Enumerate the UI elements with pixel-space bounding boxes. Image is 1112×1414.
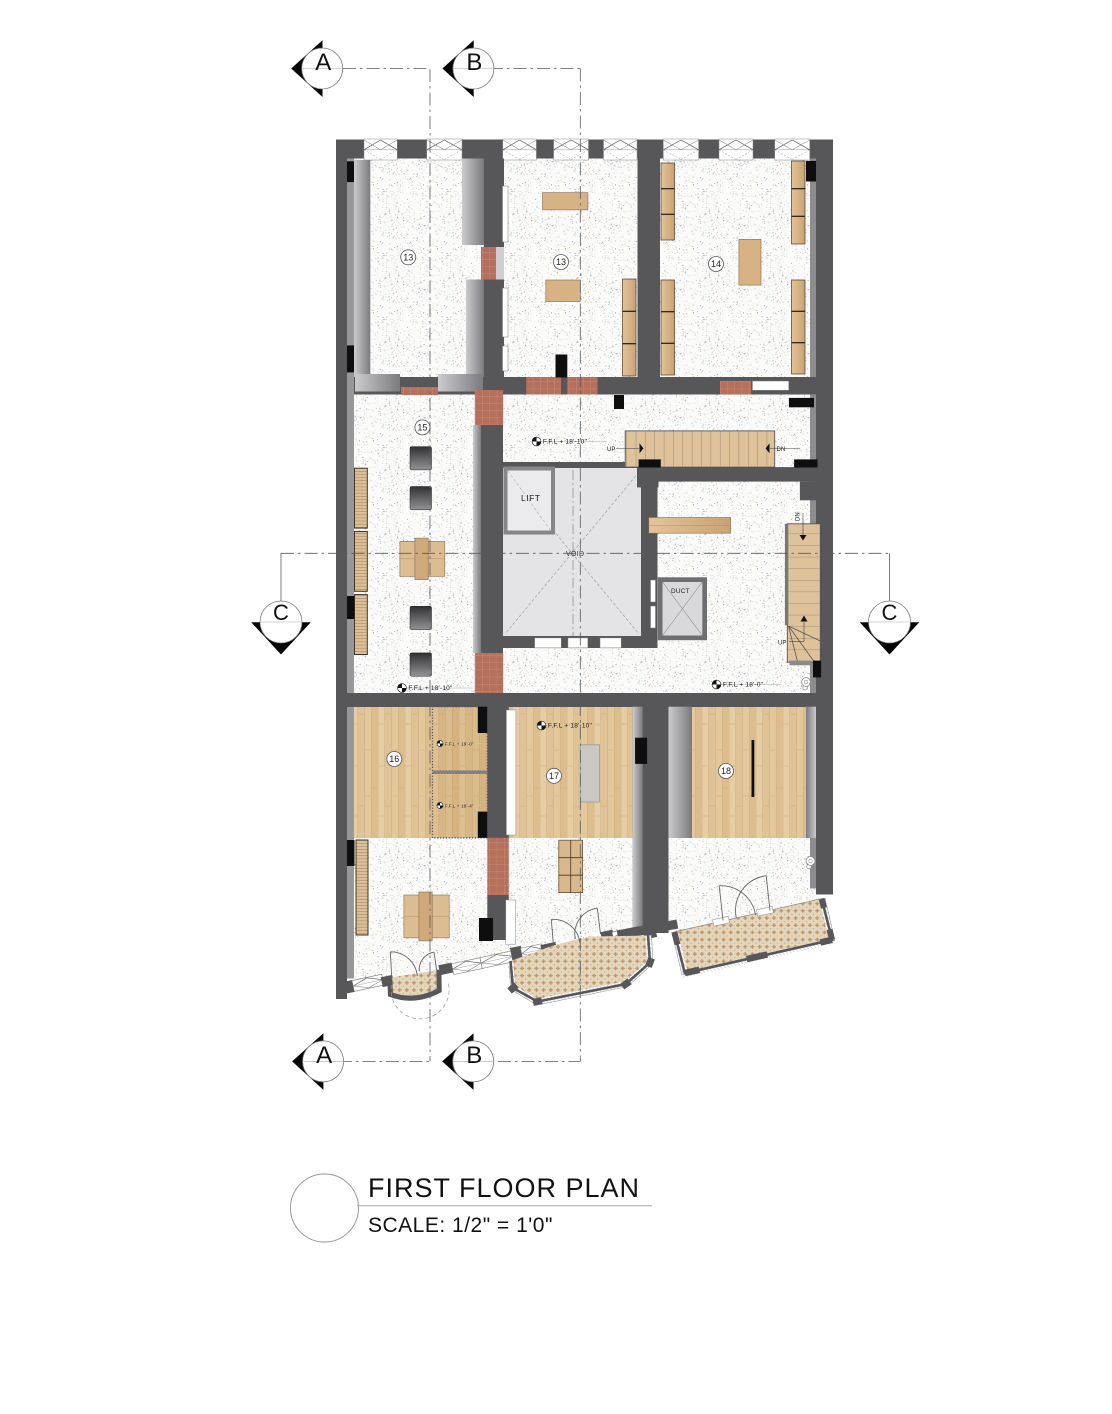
- svg-text:F.F.L + 18'-10": F.F.L + 18'-10": [543, 438, 588, 445]
- svg-text:14: 14: [711, 259, 721, 269]
- svg-text:F.F.L + 18'-10": F.F.L + 18'-10": [408, 685, 453, 692]
- svg-text:A: A: [316, 1042, 332, 1069]
- svg-text:DUCT: DUCT: [671, 588, 690, 595]
- svg-text:16: 16: [389, 754, 399, 764]
- svg-text:C: C: [882, 600, 898, 625]
- svg-text:SCALE: 1/2" = 1'0": SCALE: 1/2" = 1'0": [368, 1214, 553, 1237]
- svg-text:F.F.L + 18'-10": F.F.L + 18'-10": [548, 722, 593, 729]
- svg-text:F.F.L + 19'-0": F.F.L + 19'-0": [445, 741, 474, 746]
- svg-text:F.F.L + 19'-4": F.F.L + 19'-4": [445, 803, 474, 808]
- svg-text:B: B: [466, 1042, 482, 1069]
- svg-text:LIFT: LIFT: [521, 493, 540, 503]
- svg-text:15: 15: [417, 423, 427, 433]
- svg-text:F.F.L + 18'-0": F.F.L + 18'-0": [723, 681, 764, 688]
- svg-text:C: C: [273, 600, 289, 625]
- svg-text:UP: UP: [778, 641, 786, 647]
- svg-text:UP: UP: [607, 447, 615, 453]
- svg-text:13: 13: [403, 253, 413, 263]
- svg-text:13: 13: [556, 257, 566, 267]
- svg-text:17: 17: [549, 771, 559, 781]
- svg-text:DN: DN: [796, 512, 802, 521]
- svg-text:18: 18: [721, 766, 731, 776]
- svg-text:A: A: [315, 49, 331, 76]
- svg-text:DN: DN: [777, 447, 786, 453]
- svg-text:FIRST FLOOR PLAN: FIRST FLOOR PLAN: [368, 1173, 640, 1203]
- svg-text:B: B: [466, 49, 482, 76]
- svg-text:VOID: VOID: [566, 551, 584, 558]
